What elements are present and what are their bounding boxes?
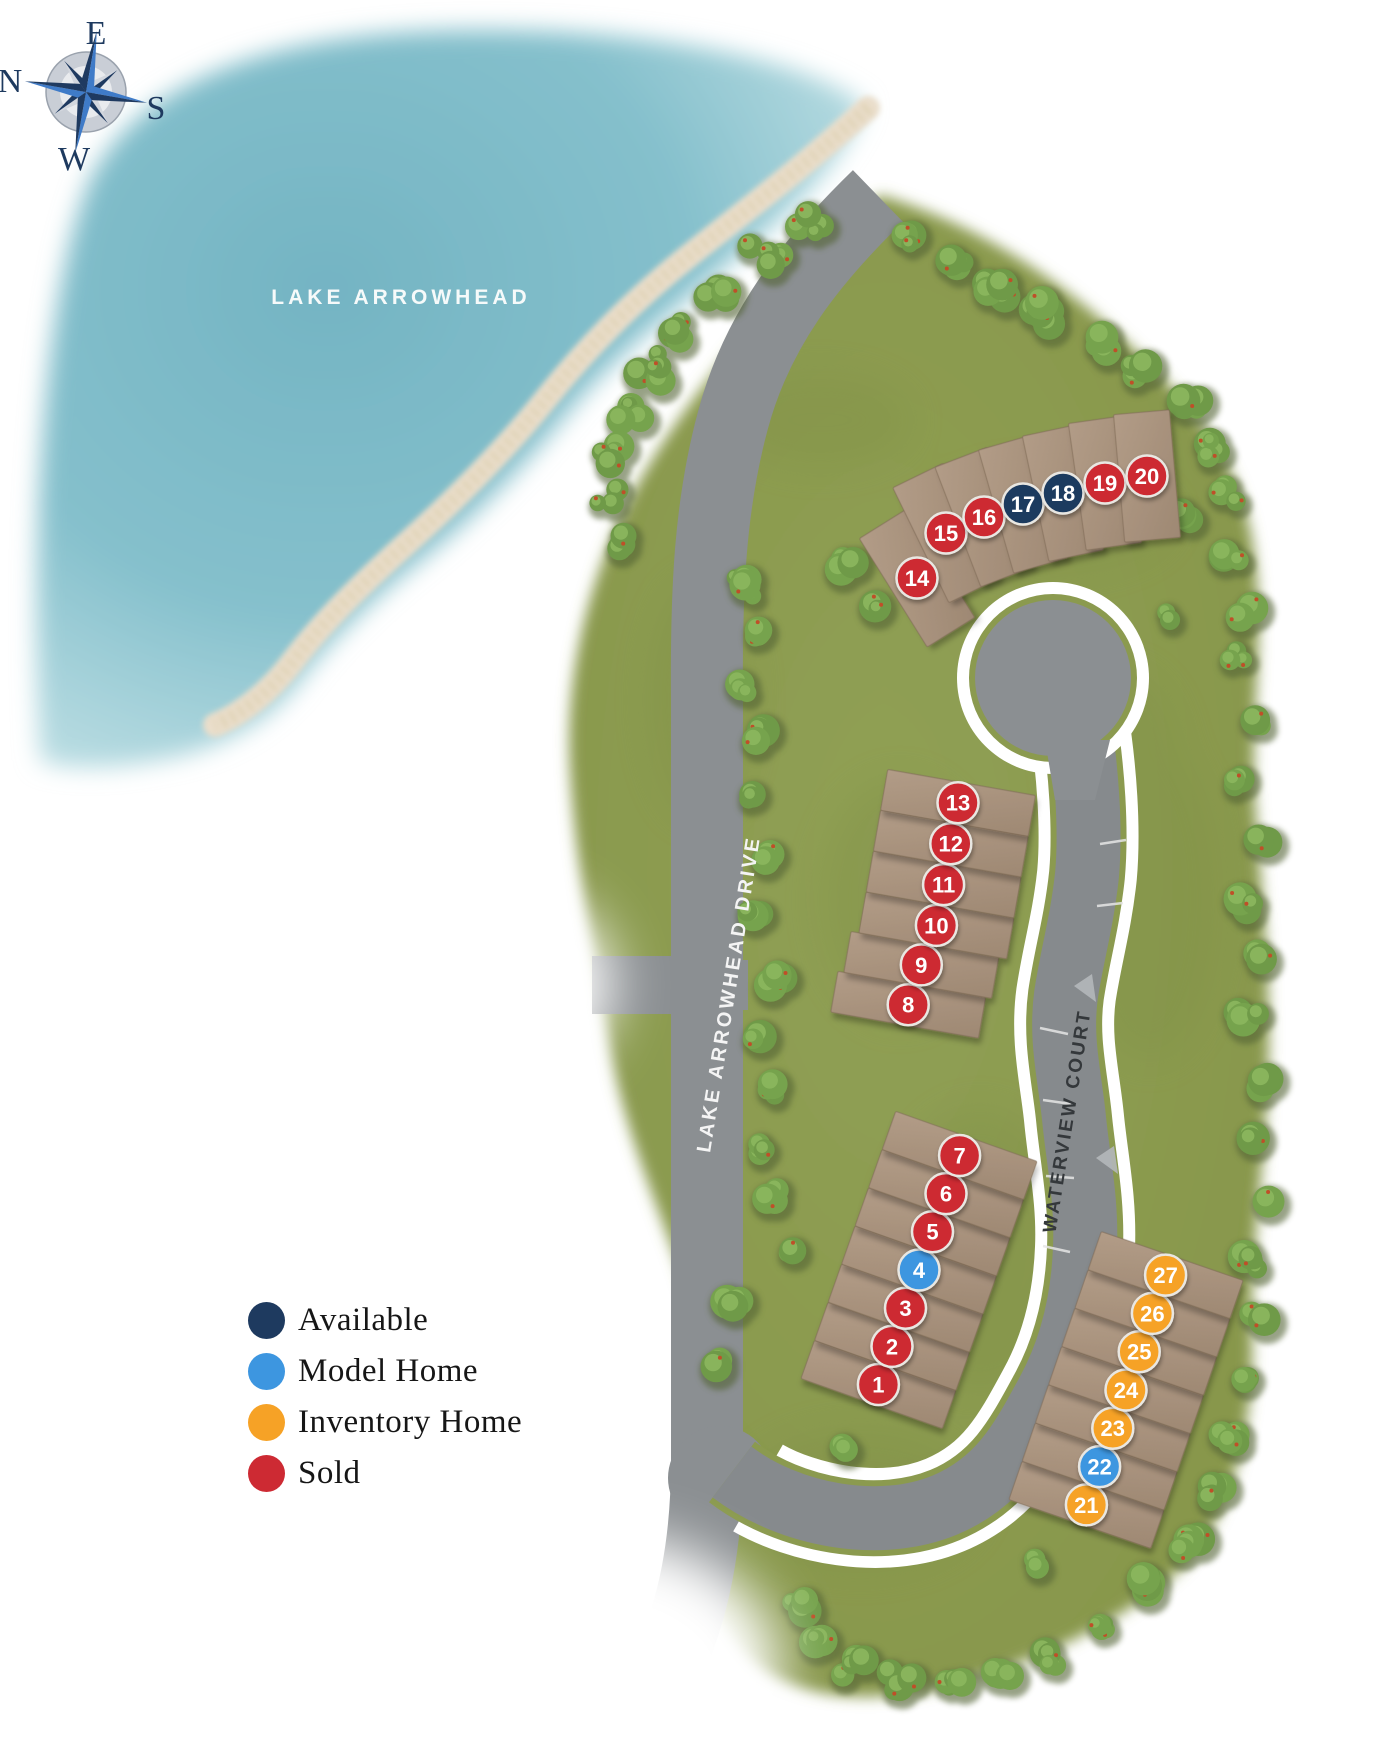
lot-marker-21[interactable]: 21	[1066, 1484, 1107, 1525]
lot-marker-15[interactable]: 15	[926, 513, 967, 554]
lot-marker-23[interactable]: 23	[1092, 1408, 1133, 1449]
lot-number: 15	[934, 521, 958, 546]
legend-label: Model Home	[298, 1355, 478, 1388]
compass-east-label: E	[86, 15, 107, 52]
site-plan: 1 2 3 4 5 6 7 8 9 10 11 12 13 14 15 16 1…	[0, 0, 1400, 1740]
legend-item-model-home: Model Home	[248, 1352, 522, 1390]
lot-number: 7	[953, 1143, 965, 1168]
lot-marker-9[interactable]: 9	[901, 944, 942, 985]
lot-number: 16	[972, 505, 996, 530]
legend-label: Inventory Home	[298, 1406, 522, 1439]
lot-number: 11	[932, 873, 955, 898]
lot-number: 6	[940, 1182, 952, 1207]
lot-marker-1[interactable]: 1	[858, 1364, 899, 1405]
lot-marker-13[interactable]: 13	[938, 782, 979, 823]
lot-number: 25	[1127, 1340, 1151, 1365]
lot-number: 12	[939, 832, 963, 857]
lot-marker-8[interactable]: 8	[888, 984, 929, 1025]
legend-label: Available	[298, 1304, 428, 1337]
lot-number: 10	[924, 913, 948, 938]
lot-marker-24[interactable]: 24	[1106, 1370, 1147, 1411]
lot-marker-2[interactable]: 2	[872, 1326, 913, 1367]
lot-number: 27	[1153, 1263, 1177, 1288]
lot-marker-22[interactable]: 22	[1079, 1446, 1120, 1487]
compass-west-label: W	[58, 141, 91, 178]
available-swatch-icon	[248, 1302, 285, 1339]
lot-number: 13	[946, 791, 970, 816]
lot-marker-11[interactable]: 11	[923, 864, 964, 905]
lot-marker-14[interactable]: 14	[897, 558, 938, 599]
compass-rose: E N S W	[0, 0, 180, 180]
lot-number: 18	[1051, 481, 1075, 506]
lot-marker-4[interactable]: 4	[899, 1250, 940, 1291]
lot-number: 23	[1101, 1416, 1125, 1441]
legend-label: Sold	[298, 1457, 361, 1490]
legend-item-inventory-home: Inventory Home	[248, 1403, 522, 1441]
lot-number: 21	[1074, 1493, 1098, 1518]
lot-number: 24	[1114, 1378, 1139, 1403]
lot-number: 9	[915, 953, 927, 978]
lot-marker-7[interactable]: 7	[939, 1135, 980, 1176]
lot-marker-10[interactable]: 10	[916, 905, 957, 946]
legend-item-available: Available	[248, 1301, 522, 1339]
lot-number: 8	[902, 993, 914, 1018]
model-home-swatch-icon	[248, 1353, 285, 1390]
lot-marker-16[interactable]: 16	[964, 497, 1005, 538]
lot-marker-27[interactable]: 27	[1145, 1255, 1186, 1296]
lot-number: 1	[872, 1372, 884, 1397]
lot-number: 20	[1135, 464, 1159, 489]
lot-number: 22	[1087, 1455, 1111, 1480]
lot-marker-18[interactable]: 18	[1043, 473, 1084, 514]
lot-marker-12[interactable]: 12	[930, 823, 971, 864]
lot-marker-26[interactable]: 26	[1132, 1293, 1173, 1334]
compass-south-label: S	[147, 90, 166, 127]
lot-marker-17[interactable]: 17	[1003, 484, 1044, 525]
compass-north-label: N	[0, 63, 22, 100]
inventory-home-swatch-icon	[248, 1404, 285, 1441]
lot-number: 5	[926, 1220, 938, 1245]
lot-number: 4	[913, 1258, 926, 1283]
lot-number: 19	[1093, 471, 1117, 496]
lot-marker-3[interactable]: 3	[885, 1288, 926, 1329]
lot-marker-20[interactable]: 20	[1127, 456, 1168, 497]
lake-label: LAKE ARROWHEAD	[271, 286, 530, 309]
legend-item-sold: Sold	[248, 1454, 522, 1492]
lot-number: 26	[1140, 1301, 1164, 1326]
site-map: 1 2 3 4 5 6 7 8 9 10 11 12 13 14 15 16 1…	[0, 0, 1400, 1740]
lot-marker-5[interactable]: 5	[912, 1211, 953, 1252]
lot-number: 14	[905, 566, 930, 591]
lot-marker-25[interactable]: 25	[1119, 1331, 1160, 1372]
lot-marker-6[interactable]: 6	[926, 1173, 967, 1214]
lot-number: 17	[1011, 492, 1035, 517]
legend: Available Model Home Inventory Home Sold	[248, 1301, 522, 1492]
lot-number: 3	[899, 1296, 911, 1321]
sold-swatch-icon	[248, 1455, 285, 1492]
lot-number: 2	[886, 1334, 898, 1359]
lot-marker-19[interactable]: 19	[1085, 463, 1126, 504]
